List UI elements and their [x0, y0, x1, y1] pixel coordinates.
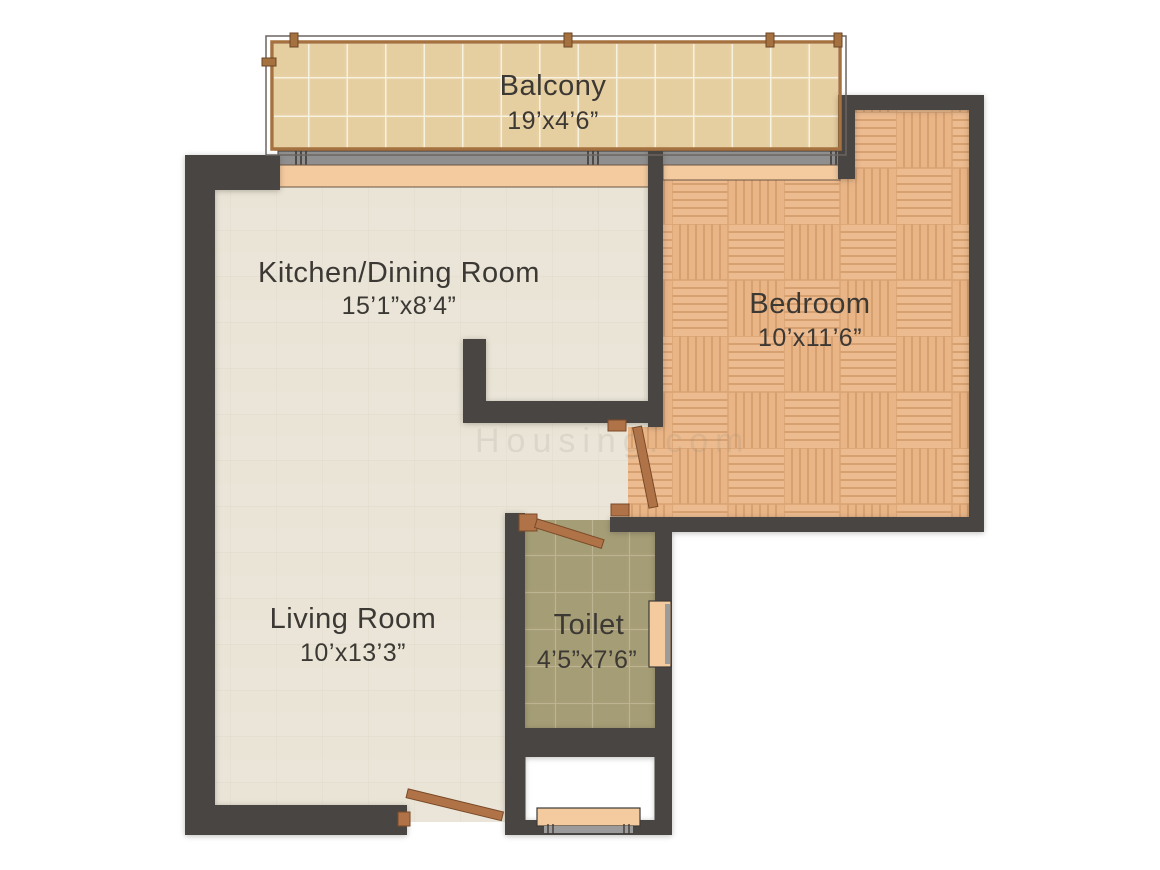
wall-kitchen-top	[185, 155, 280, 190]
wall-toilet-bottom	[525, 728, 655, 757]
kitchen-dining-dimensions: 15’1”x8’4”	[342, 292, 457, 320]
watermark-text: Housing.com	[475, 422, 750, 460]
wall-toilet-left	[505, 513, 525, 835]
wall-living-bottom	[185, 805, 407, 835]
bedroom-floor-upper	[848, 105, 971, 175]
toilet-label: Toilet	[554, 609, 625, 641]
wall-toilet-right	[655, 532, 672, 835]
balcony-dimensions: 19’x4’6”	[507, 107, 599, 135]
lobby-window	[537, 808, 640, 834]
toilet-window	[649, 601, 671, 667]
floor-plan-drawing: Housing.com Balcony 19’x4’6” Kitchen/Din…	[0, 0, 1160, 870]
bedroom-window-sill	[663, 165, 840, 180]
balcony-sliding-window	[278, 151, 843, 165]
wall-bedroom-left	[648, 150, 663, 427]
wall-exterior-left	[185, 155, 215, 835]
bedroom-dimensions: 10’x11’6”	[758, 324, 862, 352]
wall-bedroom-right	[969, 95, 984, 532]
living-room-label: Living Room	[270, 603, 437, 635]
wall-bedroom-top	[838, 95, 984, 110]
wall-bedroom-bottom	[610, 517, 984, 532]
wall-kitchen-divider-horizontal	[463, 401, 663, 423]
bedroom-label: Bedroom	[749, 288, 870, 320]
kitchen-dining-label: Kitchen/Dining Room	[258, 257, 540, 289]
toilet-dimensions: 4’5”x7’6”	[537, 646, 637, 674]
floor-plan-canvas: Housing.com Balcony 19’x4’6” Kitchen/Din…	[0, 0, 1160, 870]
living-room-dimensions: 10’x13’3”	[300, 639, 406, 667]
balcony-label: Balcony	[500, 70, 607, 102]
kitchen-window-sill	[277, 165, 650, 187]
